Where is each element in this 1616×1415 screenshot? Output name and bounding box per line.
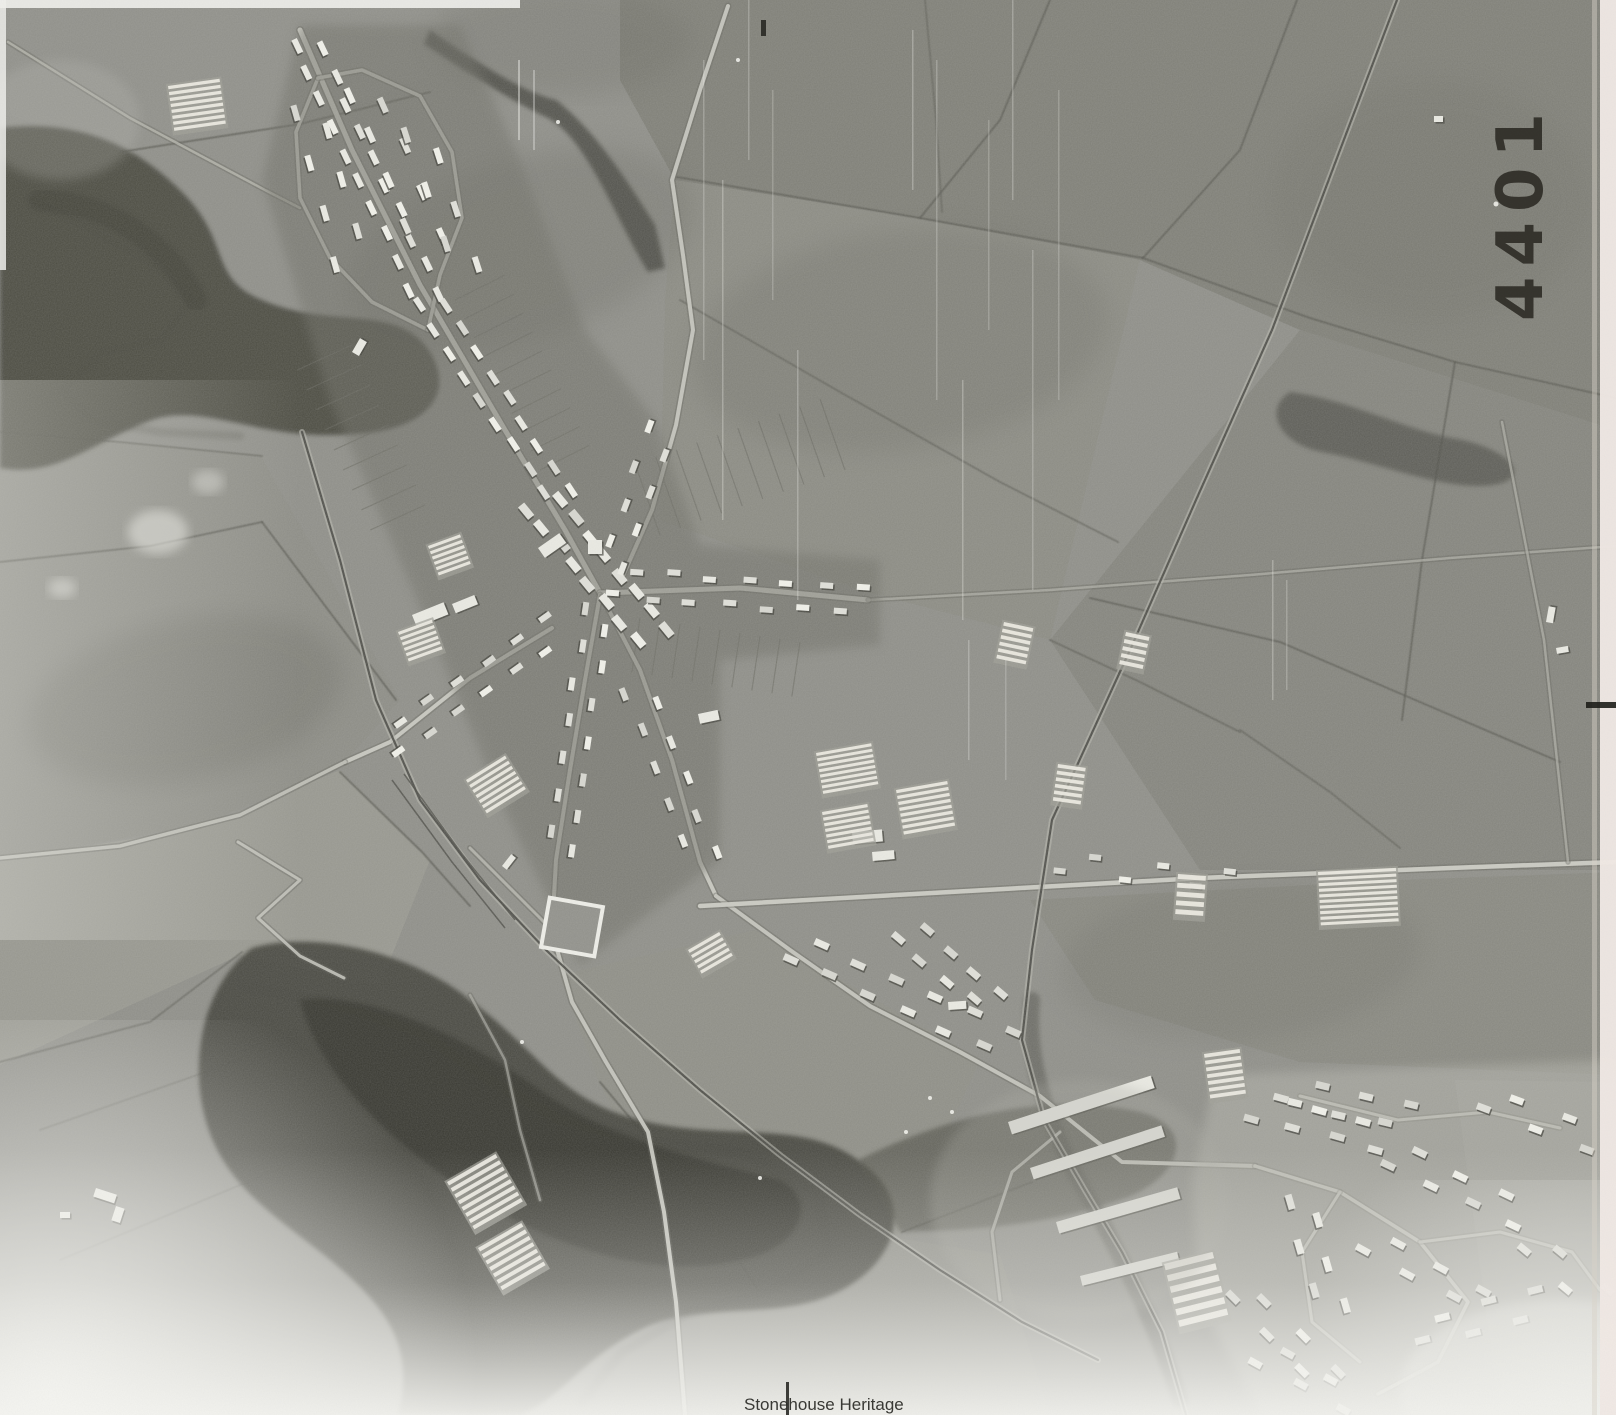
ink-mark: [1586, 702, 1616, 708]
ink-mark: [761, 20, 766, 36]
watermark-label: Stonehouse Heritage: [744, 1395, 904, 1414]
aerial-photo-canvas: 4401 Stonehouse Heritage: [0, 0, 1616, 1415]
aerial-photograph: 4401 Stonehouse Heritage: [0, 0, 1616, 1415]
photo-number-label: 4401: [1484, 103, 1558, 321]
film-grain: [0, 0, 1616, 1415]
